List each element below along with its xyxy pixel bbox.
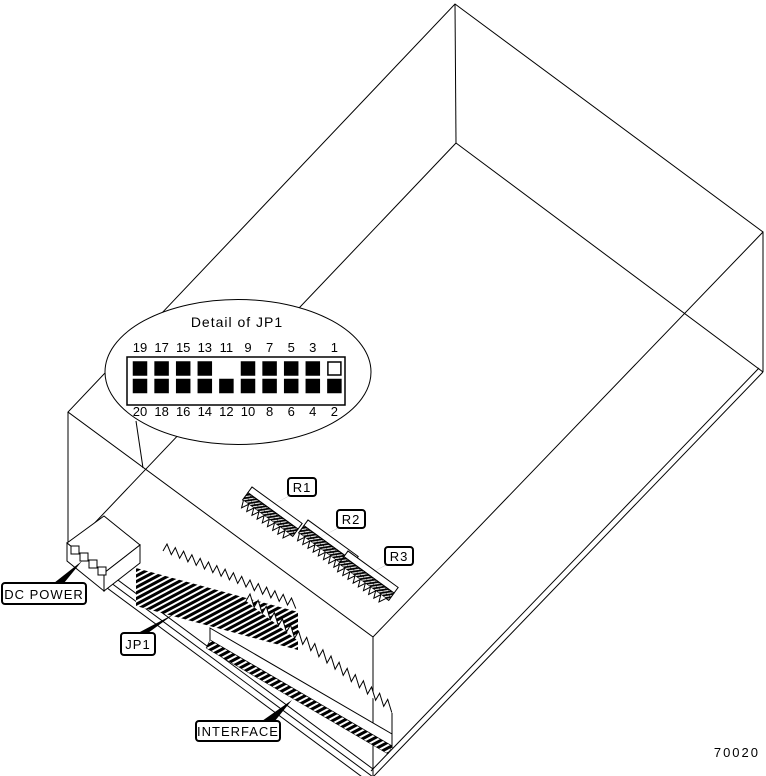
jp1-pin-1-open bbox=[328, 362, 341, 375]
jp1-pin-9-filled bbox=[242, 362, 255, 375]
callout-r1: R1 bbox=[268, 478, 316, 507]
detail-leader-line bbox=[136, 421, 143, 468]
callout-dc-power: DC POWER bbox=[2, 561, 86, 604]
interface-label: INTERFACE bbox=[197, 724, 279, 739]
jp1-pin-5-filled bbox=[285, 362, 298, 375]
jp1-pin-label-18: 18 bbox=[154, 404, 168, 419]
jp1-pin-label-19: 19 bbox=[133, 340, 147, 355]
case-bottom-right-edge bbox=[373, 372, 763, 776]
case-inner-bottom-right-edge bbox=[456, 143, 763, 372]
figure-number: 70020 bbox=[714, 745, 760, 760]
jp1-pin-4-filled bbox=[306, 380, 319, 393]
r1-label: R1 bbox=[293, 480, 312, 495]
jp1-pin-label-14: 14 bbox=[198, 404, 212, 419]
jp1-pin-12-filled bbox=[220, 380, 233, 393]
jp1-label: JP1 bbox=[125, 637, 150, 652]
jp1-pin-14-filled bbox=[198, 380, 211, 393]
jp1-pin-label-3: 3 bbox=[309, 340, 316, 355]
jp1-pin-label-7: 7 bbox=[266, 340, 273, 355]
jp1-pin-3-filled bbox=[306, 362, 319, 375]
jp1-pin-label-15: 15 bbox=[176, 340, 190, 355]
jp1-pin-18-filled bbox=[155, 380, 168, 393]
dc-pin-4 bbox=[98, 567, 106, 575]
jp1-pin-label-1: 1 bbox=[331, 340, 338, 355]
jp1-pin-19-filled bbox=[134, 362, 147, 375]
jp1-pin-label-12: 12 bbox=[219, 404, 233, 419]
jp1-pin-label-11: 11 bbox=[220, 340, 234, 355]
jp1-pin-15-filled bbox=[177, 362, 190, 375]
jp1-pin-7-filled bbox=[263, 362, 276, 375]
jp1-pin-label-13: 13 bbox=[198, 340, 212, 355]
drive-isometric-diagram: Detail of JP1 19171513119753120181614121… bbox=[0, 0, 766, 776]
jp1-pin-label-4: 4 bbox=[309, 404, 316, 419]
jp1-pin-label-9: 9 bbox=[244, 340, 251, 355]
jp1-pin-2-filled bbox=[328, 380, 341, 393]
detail-title: Detail of JP1 bbox=[191, 314, 283, 330]
dc-pin-3 bbox=[89, 560, 97, 568]
jp1-pin-6-filled bbox=[285, 380, 298, 393]
jp1-pin-17-filled bbox=[155, 362, 168, 375]
jp1-pin-20-filled bbox=[134, 380, 147, 393]
jp1-pin-8-filled bbox=[263, 380, 276, 393]
r2-label: R2 bbox=[342, 512, 361, 527]
dc-power-connector bbox=[67, 516, 140, 591]
jp1-pin-label-16: 16 bbox=[176, 404, 190, 419]
jp1-pin-label-6: 6 bbox=[288, 404, 295, 419]
dc-pin-2 bbox=[80, 553, 88, 561]
dc-power-label: DC POWER bbox=[4, 587, 84, 602]
jp1-pin-label-2: 2 bbox=[331, 404, 338, 419]
jp1-detail-bubble: Detail of JP1 19171513119753120181614121… bbox=[105, 300, 371, 469]
case-bottom-right-seam bbox=[371, 368, 759, 771]
jp1-pin-13-filled bbox=[198, 362, 211, 375]
jp1-pin-label-8: 8 bbox=[266, 404, 273, 419]
jp1-pin-label-5: 5 bbox=[288, 340, 295, 355]
dc-pin-1 bbox=[71, 546, 79, 554]
jp1-pin-label-17: 17 bbox=[154, 340, 168, 355]
case-back-vertical-edge bbox=[455, 4, 456, 143]
jp1-pin-10-filled bbox=[242, 380, 255, 393]
jp1-pointer bbox=[138, 614, 174, 633]
jp1-pin-label-10: 10 bbox=[241, 404, 255, 419]
jp1-pin-label-20: 20 bbox=[133, 404, 147, 419]
r3-label: R3 bbox=[390, 549, 409, 564]
technical-drawing: Detail of JP1 19171513119753120181614121… bbox=[0, 0, 766, 776]
callout-jp1: JP1 bbox=[121, 614, 174, 655]
jp1-pin-16-filled bbox=[177, 380, 190, 393]
